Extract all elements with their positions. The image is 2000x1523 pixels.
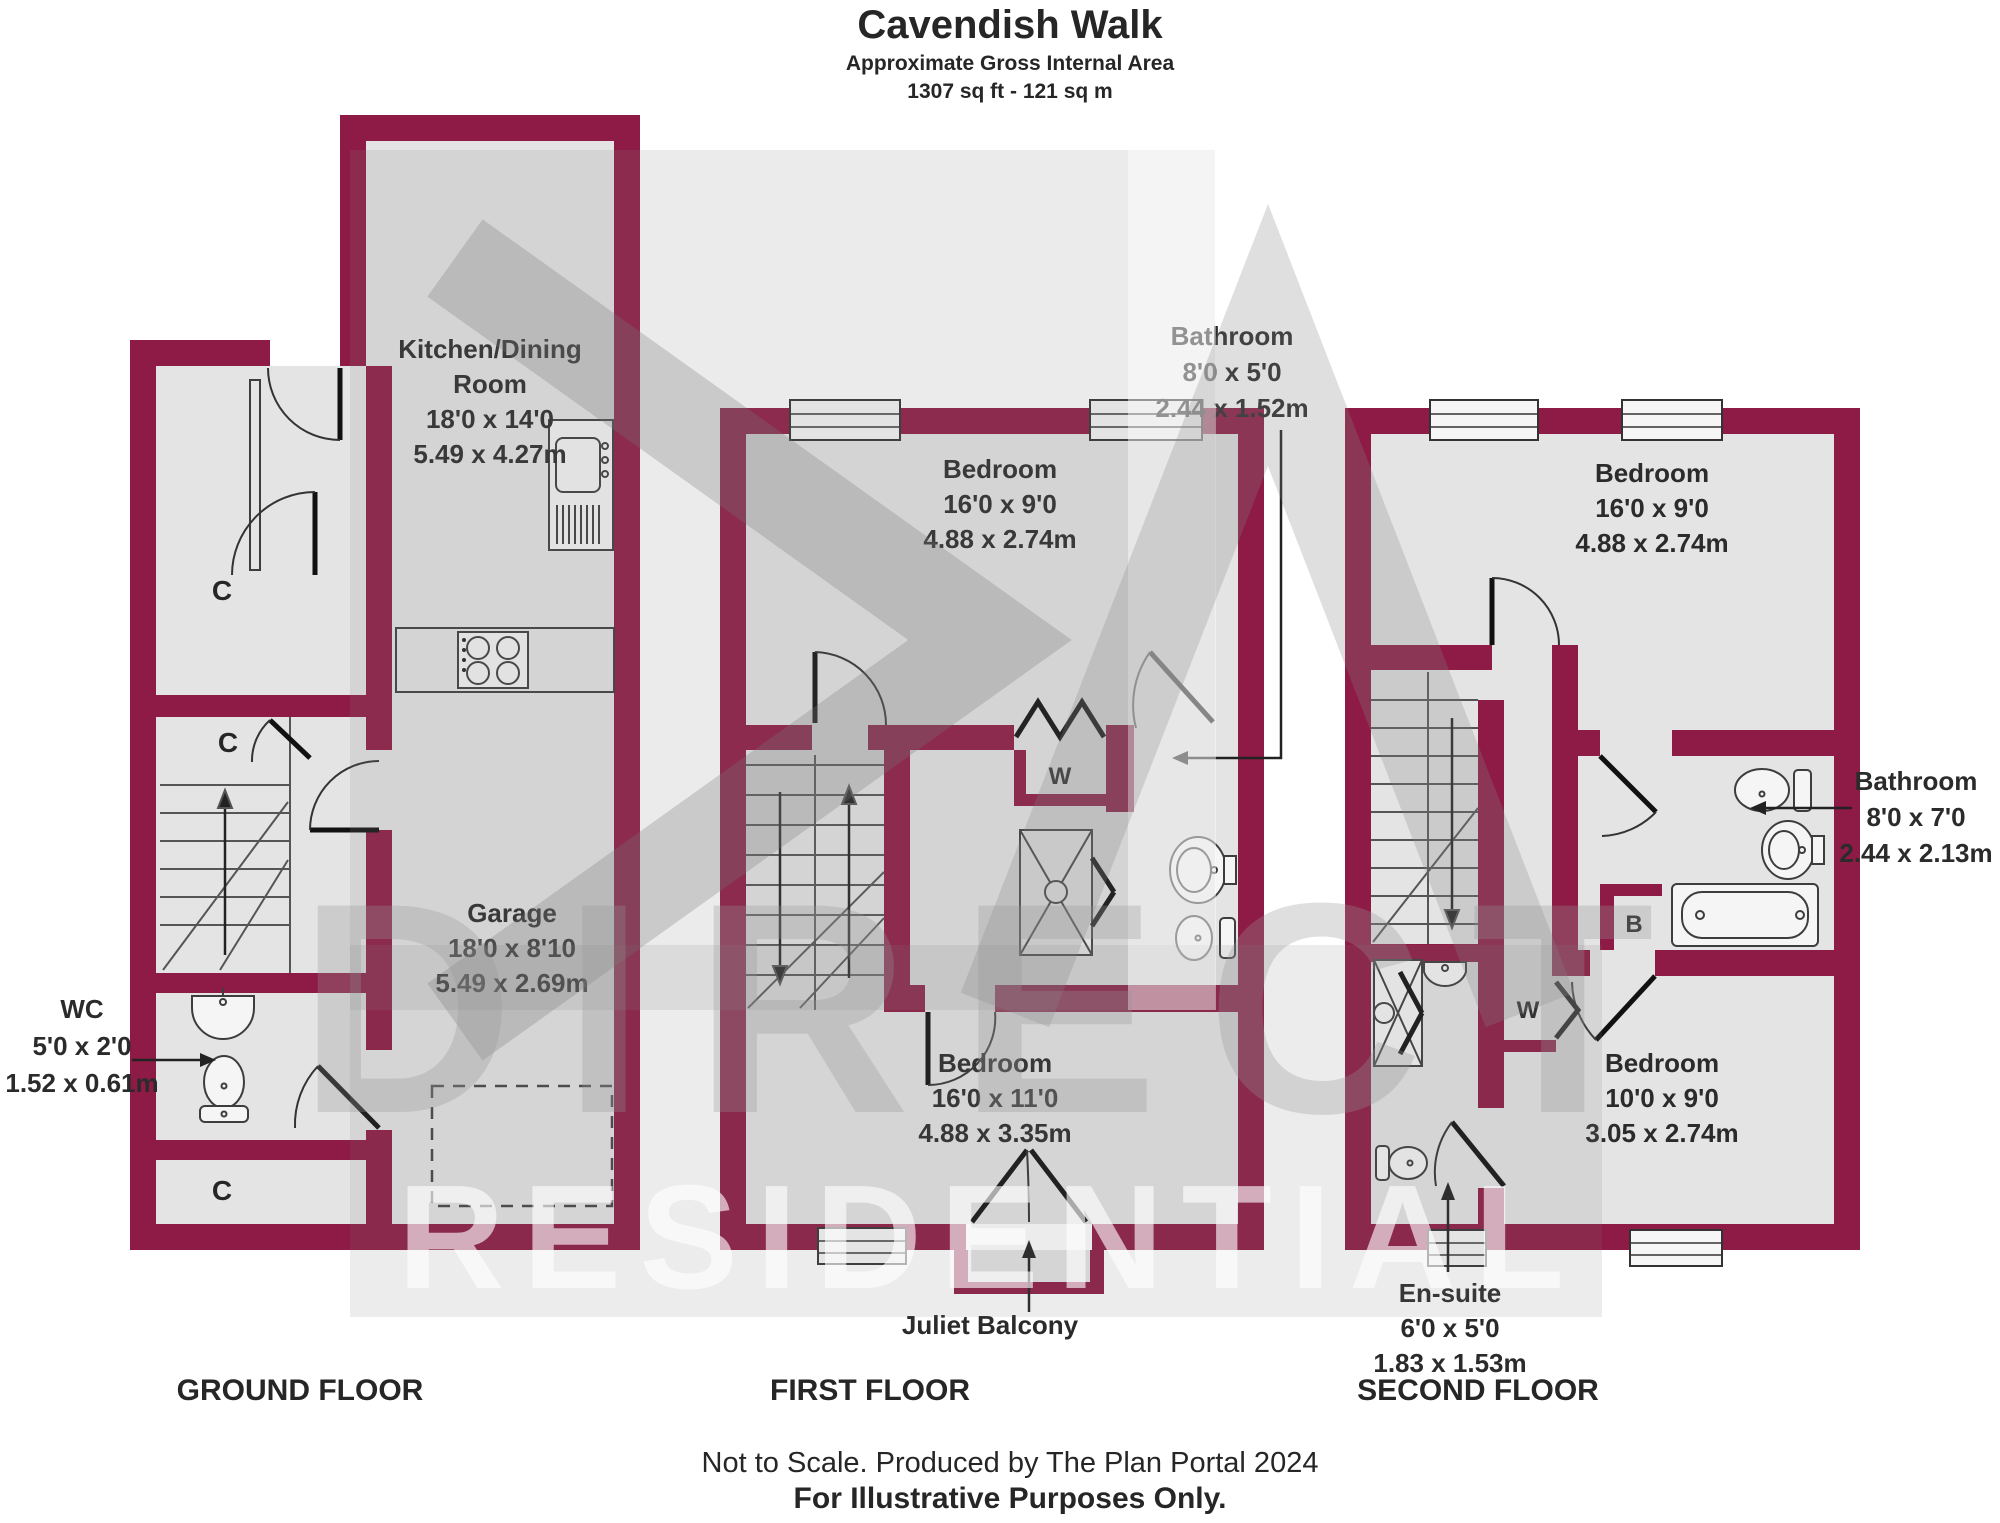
ensuite-imperial: 6'0 x 5'0 <box>1400 1313 1499 1343</box>
kitchen-label-2: Room <box>453 369 527 399</box>
wc-imperial: 5'0 x 2'0 <box>32 1031 131 1061</box>
bedroom1-imperial: 16'0 x 9'0 <box>943 489 1057 519</box>
ensuite-label: En-suite <box>1399 1278 1502 1308</box>
page-subtitle: Approximate Gross Internal Area <box>846 52 1175 75</box>
closet-label-3: C <box>212 1175 232 1206</box>
bedroom4-imperial: 10'0 x 9'0 <box>1605 1083 1719 1113</box>
toilet-symbol-first <box>1176 916 1235 960</box>
wardrobe-label-first: W <box>1049 763 1072 790</box>
bathroom2-imperial: 8'0 x 7'0 <box>1866 802 1965 832</box>
floorplan-canvas: Cavendish Walk Approximate Gross Interna… <box>0 0 2000 1523</box>
bathtub-symbol <box>1672 884 1818 946</box>
bedroom2-metric: 4.88 x 3.35m <box>918 1118 1071 1148</box>
bedroom2-label: Bedroom <box>938 1048 1052 1078</box>
kitchen-metric: 5.49 x 4.27m <box>413 439 566 469</box>
garage-label: Garage <box>467 898 557 928</box>
bathroom1-imperial: 8'0 x 5'0 <box>1182 357 1281 387</box>
closet-label-2: C <box>218 727 238 758</box>
page-title: Cavendish Walk <box>857 3 1163 47</box>
shower-symbol-ensuite <box>1374 960 1422 1066</box>
garage-imperial: 18'0 x 8'10 <box>448 933 576 963</box>
bedroom1-label: Bedroom <box>943 454 1057 484</box>
ground-floor-plan: Kitchen/Dining Room 18'0 x 14'0 5.49 x 4… <box>5 115 640 1250</box>
header: Cavendish Walk Approximate Gross Interna… <box>846 3 1175 103</box>
first-floor-plan: Bedroom 16'0 x 9'0 4.88 x 2.74m W Bedroo… <box>720 321 1309 1340</box>
ground-floor-title: GROUND FLOOR <box>177 1374 424 1407</box>
bedroom3-imperial: 16'0 x 9'0 <box>1595 493 1709 523</box>
bathroom1-label: Bathroom <box>1171 321 1294 351</box>
bedroom4-metric: 3.05 x 2.74m <box>1585 1118 1738 1148</box>
second-floor-title: SECOND FLOOR <box>1357 1374 1599 1407</box>
bathroom2-metric: 2.44 x 2.13m <box>1839 838 1992 868</box>
juliet-balcony-label: Juliet Balcony <box>902 1310 1079 1340</box>
bedroom3-label: Bedroom <box>1595 458 1709 488</box>
bathroom1-metric: 2.44 x 1.52m <box>1155 393 1308 423</box>
floorplan-page: Cavendish Walk Approximate Gross Interna… <box>0 0 2000 1523</box>
wc-toilet-symbol <box>200 1056 248 1122</box>
bedroom3-metric: 4.88 x 2.74m <box>1575 528 1728 558</box>
wc-sink-symbol <box>192 988 254 1039</box>
wardrobe-label-second: W <box>1517 997 1540 1024</box>
kitchen-imperial: 18'0 x 14'0 <box>426 404 554 434</box>
kitchen-label: Kitchen/Dining <box>398 334 581 364</box>
bedroom2-imperial: 16'0 x 11'0 <box>932 1083 1059 1113</box>
page-area: 1307 sq ft - 121 sq m <box>907 80 1112 103</box>
bedroom1-metric: 4.88 x 2.74m <box>923 524 1076 554</box>
floor-titles: GROUND FLOOR FIRST FLOOR SECOND FLOOR <box>177 1374 1599 1407</box>
bathroom2-label: Bathroom <box>1855 766 1978 796</box>
second-floor-plan: Bedroom 16'0 x 9'0 4.88 x 2.74m W B Bedr… <box>1345 400 1993 1378</box>
boiler-label: B <box>1625 911 1642 938</box>
closet-label-1: C <box>212 575 232 606</box>
footer-line-1: Not to Scale. Produced by The Plan Porta… <box>702 1447 1319 1479</box>
toilet-symbol-second <box>1735 769 1811 811</box>
wc-metric: 1.52 x 0.61m <box>5 1068 158 1098</box>
first-floor-title: FIRST FLOOR <box>770 1374 970 1407</box>
garage-metric: 5.49 x 2.69m <box>435 968 588 998</box>
footer: Not to Scale. Produced by The Plan Porta… <box>702 1447 1319 1515</box>
hob-symbol <box>458 632 528 688</box>
toilet-symbol-ensuite <box>1376 1146 1427 1180</box>
wc-label: WC <box>60 994 104 1024</box>
footer-line-2: For Illustrative Purposes Only. <box>794 1482 1227 1515</box>
bedroom4-label: Bedroom <box>1605 1048 1719 1078</box>
